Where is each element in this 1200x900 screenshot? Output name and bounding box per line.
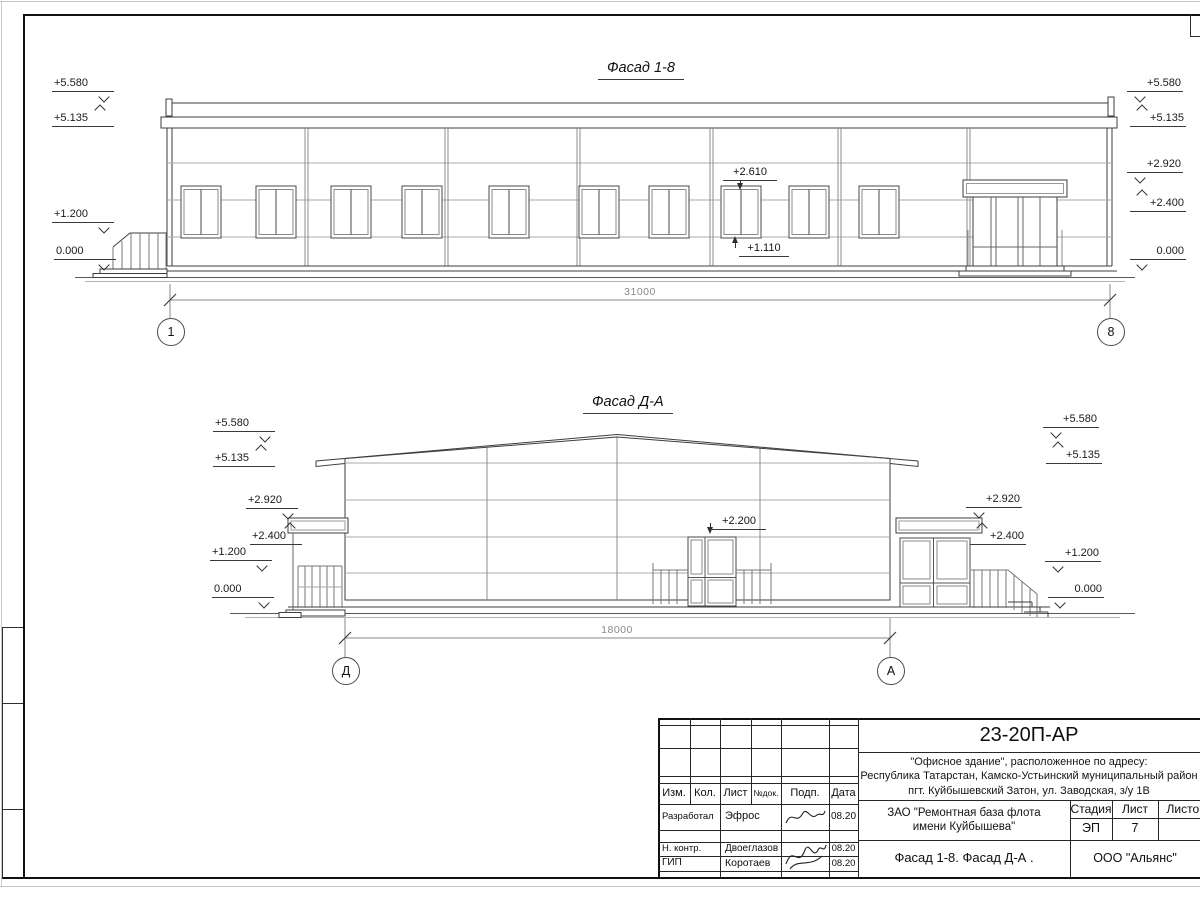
level-mark: +5.135: [52, 112, 114, 127]
level-mark: +5.580: [1043, 413, 1099, 428]
tb-col-kol: Кол.: [690, 783, 720, 804]
tb-role: Разработал: [659, 804, 722, 830]
level-mark: +2.920: [966, 493, 1022, 508]
tb-client-line2: имени Куйбышева": [913, 820, 1016, 834]
tb-name: Коротаев: [722, 856, 783, 871]
level-mark: +2.920: [246, 494, 298, 509]
level-mark: +2.920: [1127, 158, 1183, 173]
leader-arrow-down: [740, 180, 741, 187]
tb-name: Эфрос: [722, 804, 783, 830]
tb-col-list: Лист: [720, 783, 751, 804]
leader-arrow-down: [710, 523, 711, 531]
level-mark: +5.580: [213, 417, 275, 432]
level-mark: +1.200: [1045, 547, 1101, 562]
leader-arrow-up: [735, 239, 736, 248]
level-mark: +5.135: [213, 452, 275, 467]
signature: [783, 806, 827, 828]
axis-bubble-1: 1: [157, 318, 185, 346]
dimension-value: 18000: [575, 624, 659, 636]
tb-date: 08.20: [829, 804, 858, 830]
tb-col-podp: Подп.: [781, 783, 829, 804]
level-mark: +5.580: [1127, 77, 1183, 92]
tb-client-line1: ЗАО "Ремонтная база флота: [887, 806, 1040, 820]
level-mark: +2.400: [970, 530, 1026, 545]
tb-address: "Офисное здание", расположенное по адрес…: [860, 754, 1198, 799]
annotation-window-sill: +1.110: [739, 242, 789, 257]
facade1-windows: [181, 186, 899, 238]
tb-doc-number: 23-20П-АР: [858, 720, 1200, 750]
tb-role: Н. контр.: [659, 842, 722, 856]
drawing-sheet: Фасад 1-8 Фасад Д-А +5.580 +5.135 +1.200…: [0, 0, 1200, 900]
level-mark: +5.135: [1130, 112, 1186, 127]
level-mark: +5.580: [52, 77, 114, 92]
facade1-title: Фасад 1-8: [598, 60, 684, 80]
level-mark: +2.400: [1130, 197, 1186, 212]
tb-client: ЗАО "Ремонтная база флота имени Куйбышев…: [860, 801, 1068, 839]
tb-col-ndok: №док.: [751, 783, 781, 804]
tb-sheet-value: 7: [1112, 818, 1158, 840]
level-mark: +5.135: [1046, 449, 1102, 464]
signature: [782, 838, 828, 872]
axis-bubble-8: 8: [1097, 318, 1125, 346]
facade2-building: [230, 435, 1135, 618]
dimension-value: 31000: [598, 286, 682, 298]
level-mark: 0.000: [212, 583, 274, 598]
tb-stage-label: Стадия: [1070, 800, 1112, 818]
annotation-door-top: +2.200: [712, 515, 766, 530]
axis-bubble-a: А: [877, 657, 905, 685]
level-mark: +1.200: [210, 546, 272, 561]
tb-stage-value: ЭП: [1070, 818, 1112, 840]
axis-bubble-d: Д: [332, 657, 360, 685]
tb-date: 08.20: [829, 856, 858, 871]
level-mark: 0.000: [54, 245, 116, 260]
level-mark: 0.000: [1130, 245, 1186, 260]
tb-address-line2: Республика Татарстан, Камско-Устьинский …: [860, 769, 1197, 784]
tb-name: Двоеглазов: [722, 842, 783, 856]
tb-address-line3: пгт. Куйбышевский Затон, ул. Заводская, …: [908, 784, 1150, 799]
tb-sheet-label: Лист: [1112, 800, 1158, 818]
tb-date: 08.20: [829, 842, 858, 856]
facade2-title: Фасад Д-А: [583, 394, 673, 414]
level-mark: +1.200: [52, 208, 114, 223]
tb-company: ООО "Альянс": [1070, 841, 1200, 876]
tb-col-izm: Изм.: [658, 783, 690, 804]
level-mark: +2.400: [250, 530, 302, 545]
level-mark: 0.000: [1048, 583, 1104, 598]
tb-address-line1: "Офисное здание", расположенное по адрес…: [910, 755, 1147, 770]
tb-sheet-title: Фасад 1-8. Фасад Д-А .: [858, 841, 1070, 876]
tb-col-data: Дата: [829, 783, 858, 804]
facade1-entrance: [959, 180, 1071, 276]
tb-sheets-label: Листов: [1158, 800, 1200, 818]
annotation-window-top: +2.610: [723, 166, 777, 181]
tb-role: ГИП: [659, 856, 722, 871]
